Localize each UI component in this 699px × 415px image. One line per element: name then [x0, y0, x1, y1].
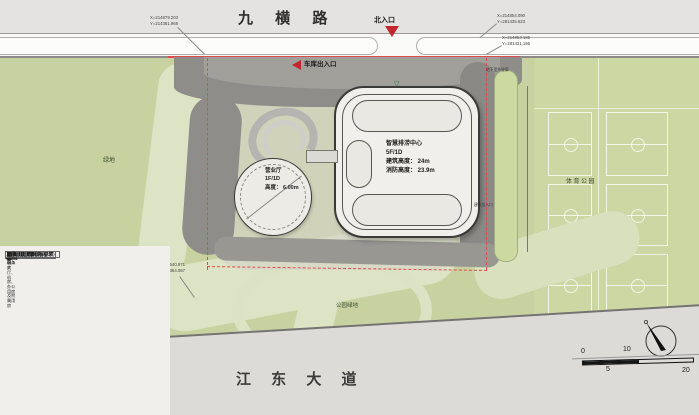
main-building-height: 建筑高度： 24m — [386, 158, 478, 167]
site-boundary-right — [486, 58, 487, 270]
site-boundary-left — [207, 58, 208, 270]
main-building: 智慧排涝中心 5F/1D 建筑高度： 24m 消防高度： 23.9m — [334, 86, 480, 238]
hall-floors: 1F/1D — [265, 175, 299, 183]
hall-name: 营业厅 — [265, 167, 299, 175]
dimension-line — [527, 86, 528, 252]
coordinate-x: X=214853.185 — [502, 35, 530, 41]
coordinate-y: Y=281431.195 — [502, 41, 530, 47]
roof-element-bottom — [352, 194, 462, 226]
basketball-court — [606, 112, 668, 176]
main-building-name: 智慧排涝中心 — [386, 140, 478, 149]
green-area-label: 绿地 — [103, 155, 115, 164]
main-building-fire-height: 消防高度： 23.9m — [386, 167, 478, 176]
coordinate-top-right-2: X=214853.185 Y=281431.195 — [502, 35, 530, 47]
green-buffer-strip — [494, 70, 518, 262]
roof-element-left — [346, 140, 372, 188]
road-name-top: 九 横 路 — [238, 7, 336, 28]
coordinate-y: Y=214381.968 — [150, 21, 178, 27]
coordinate-top-right-1: X=214854.090 Y=281435.623 — [497, 13, 525, 25]
scale-label-20: 20 — [682, 367, 690, 374]
scale-label-0: 0 — [581, 348, 585, 355]
garage-entrance-label: 车库出入口 — [304, 58, 337, 68]
coordinate-y: Y=281435.623 — [497, 19, 525, 25]
north-compass-icon — [636, 314, 680, 360]
hall-label: 营业厅 1F/1D 高度： 6.00m — [265, 167, 299, 192]
basketball-court — [548, 112, 592, 176]
roof-element-top — [352, 100, 462, 132]
north-entrance-label: 北入口 — [374, 15, 395, 25]
road-name-bottom: 江 东 大 道 — [236, 368, 365, 389]
green-triangle-marker: ▽ — [394, 80, 399, 88]
basement-outline-annotation: 地下室外轮廓 — [486, 68, 509, 73]
scale-label-10: 10 — [623, 346, 631, 353]
garage-entrance-arrow-icon — [292, 60, 301, 70]
site-plan: 九 横 路 智慧排涝中心 5F/1D 建筑高度： 24m 消防高度： 23.9m — [0, 0, 699, 415]
scale-segment — [583, 360, 639, 364]
landscape-berm-top-light — [204, 57, 500, 89]
park-green-label: 公园绿地 — [336, 301, 358, 309]
sports-path-horizontal — [534, 108, 699, 109]
coordinate-x: X=214854.090 — [497, 13, 525, 19]
main-building-floors: 5F/1D — [386, 149, 478, 158]
hall-height: 高度： 6.00m — [265, 184, 299, 192]
hall-building: 营业厅 1F/1D 高度： 6.00m — [234, 158, 312, 236]
coordinate-top-left: X=214879.203 Y=214381.968 — [150, 15, 178, 27]
traffic-island-right — [416, 37, 699, 55]
sports-path-vertical — [598, 58, 599, 336]
sports-park-label: 体育公园 — [566, 176, 596, 185]
connecting-bridge — [306, 150, 338, 163]
main-building-label: 智慧排涝中心 5F/1D 建筑高度： 24m 消防高度： 23.9m — [386, 140, 478, 176]
building-entrance-annotation: 建筑出入口 — [474, 203, 493, 208]
north-entrance-arrow-icon — [385, 26, 399, 37]
scale-label-5: 5 — [606, 366, 610, 373]
coordinate-x: X=214879.203 — [150, 15, 178, 21]
table-backing — [0, 246, 170, 415]
top-road-band — [0, 0, 699, 34]
